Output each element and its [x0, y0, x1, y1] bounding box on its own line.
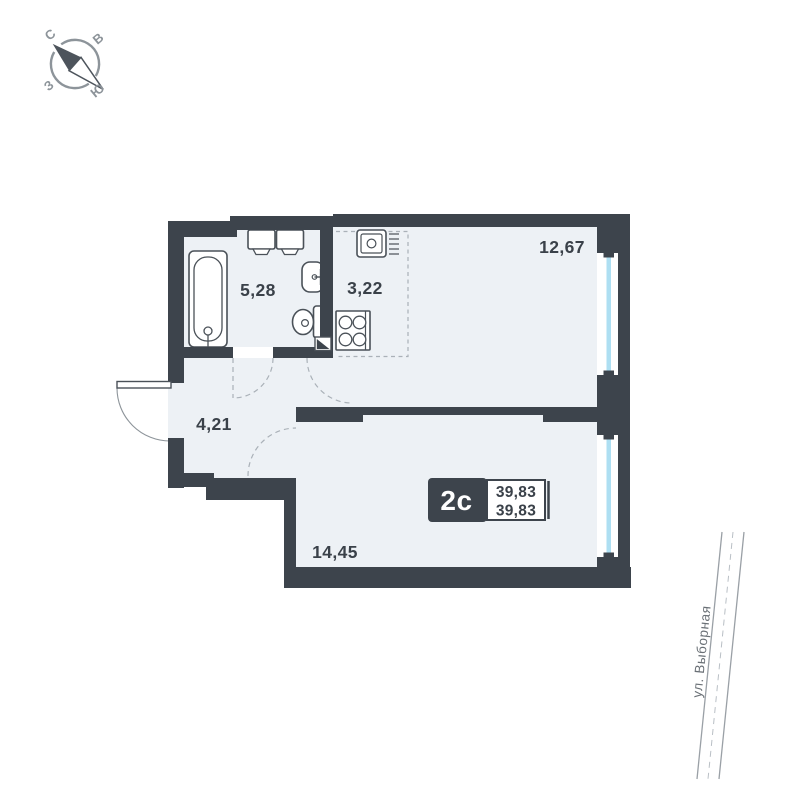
compass-letter-east: В — [90, 30, 107, 48]
wall-right-bottom — [597, 557, 630, 588]
floor-passage — [184, 358, 333, 407]
wall-right-top — [597, 214, 630, 253]
room-label-bedroom: 14,45 — [312, 542, 358, 562]
window-glass-1 — [607, 256, 612, 373]
wall-right-window2-outer — [618, 435, 630, 557]
compass-letter-south: Ю — [87, 80, 107, 100]
street: ул. Выборная — [689, 532, 744, 779]
wall-right-middle — [597, 375, 630, 435]
entrance-door-swing-arc — [117, 388, 170, 441]
unit-type: 2с — [440, 485, 472, 516]
wall-hall-bottom-2 — [206, 478, 296, 500]
room-label-hallway: 4,21 — [196, 414, 232, 434]
window1-top-cap — [604, 253, 615, 258]
street-centerline — [708, 532, 733, 779]
unit-area-total: 39,83 — [496, 484, 536, 501]
window-glass-2 — [607, 438, 612, 554]
wall-middle-thick-left — [296, 407, 363, 422]
room-label-living: 12,67 — [539, 237, 585, 257]
room-label-kitchen-niche: 3,22 — [347, 278, 383, 298]
toilet — [293, 306, 324, 338]
window1-bottom-cap — [604, 371, 615, 376]
unit-area-living: 39,83 — [496, 503, 536, 520]
vent-shaft — [315, 337, 331, 351]
floor-plan: 5,28 3,22 12,67 4,21 14,45 2с 39,83 39,8… — [0, 0, 800, 800]
window2-bottom-cap — [604, 553, 615, 558]
wall-left-upper — [168, 221, 184, 383]
compass-letter-north: С — [42, 25, 59, 43]
room-label-bathroom: 5,28 — [240, 280, 276, 300]
floor-entry-gap — [168, 383, 184, 438]
wall-middle-thin — [363, 407, 543, 415]
unit-badge: 2с 39,83 39,83 — [428, 478, 549, 522]
wall-right-window1-outer — [618, 253, 630, 375]
wall-top-main — [333, 214, 630, 227]
wall-bath-bottom-left — [168, 347, 233, 358]
wall-middle-thick-right — [543, 407, 597, 422]
compass-letter-west: З — [41, 77, 57, 94]
entrance-door-leaf — [117, 382, 171, 389]
street-edge-right — [719, 532, 744, 779]
wall-top-bath-right — [230, 216, 333, 230]
compass: С В Ю З — [41, 25, 108, 100]
bathtub — [189, 251, 227, 347]
wall-bottom — [284, 567, 631, 588]
wall-bedroom-left — [284, 478, 296, 578]
stove — [336, 311, 370, 350]
window2-top-cap — [604, 435, 615, 440]
